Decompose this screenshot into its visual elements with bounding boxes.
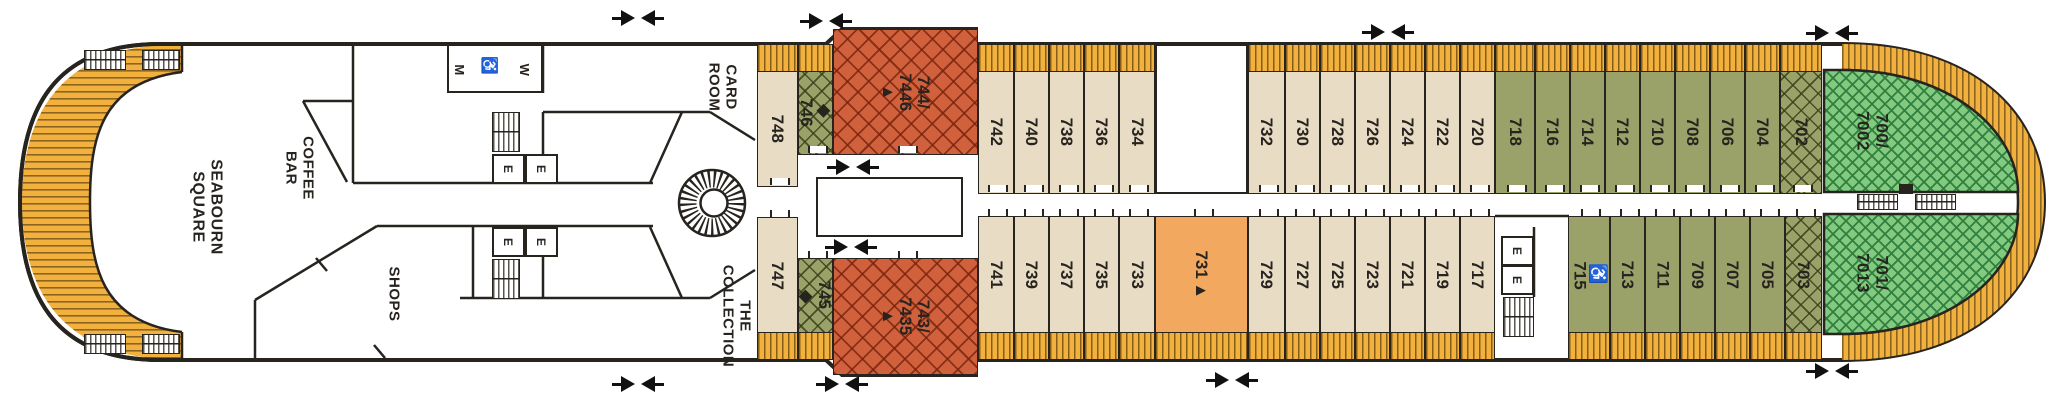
cabin-door [1615, 185, 1635, 192]
cabin-door [1435, 185, 1455, 192]
zone-arrows-layer [0, 0, 2060, 400]
arrow-tail [800, 20, 809, 23]
zone-arrow-icon [1835, 363, 1858, 379]
arrow-head [809, 13, 823, 29]
cabin-door [1059, 209, 1079, 216]
arrow-tail [1849, 370, 1858, 373]
cabin-door [1129, 185, 1149, 192]
zone-arrow-icon [612, 10, 635, 26]
cabin-door [808, 146, 828, 153]
cabin-door [808, 251, 828, 258]
arrow-head [829, 13, 843, 29]
arrow-head [1371, 24, 1385, 40]
arrow-tail [843, 20, 852, 23]
arrow-head [621, 10, 635, 26]
cabin-door [1507, 185, 1527, 192]
cabin-door [1094, 185, 1114, 192]
suite-label-701-7013: 701/ 7013 [1853, 253, 1890, 293]
cabin-door [1655, 209, 1675, 216]
cabin-door [1295, 209, 1315, 216]
arrow-tail [816, 383, 825, 386]
arrow-tail [655, 383, 664, 386]
arrow-tail [1362, 31, 1371, 34]
arrow-tail [1806, 32, 1815, 35]
arrow-head [1835, 363, 1849, 379]
zone-arrow-icon [856, 159, 879, 175]
arrow-head [621, 376, 635, 392]
arrow-tail [1249, 379, 1258, 382]
suite-label-700-7002: 700/ 7002 [1853, 111, 1890, 151]
arrow-tail [1806, 370, 1815, 373]
zone-arrow-icon [825, 239, 848, 255]
cabin-door [1024, 185, 1044, 192]
cabin-door [1580, 185, 1600, 192]
cabin-door [1259, 209, 1279, 216]
arrow-tail [825, 246, 834, 249]
cabin-door [1365, 209, 1385, 216]
zone-arrow-icon [641, 376, 664, 392]
arrow-head [1391, 24, 1405, 40]
arrow-head [834, 239, 848, 255]
cabin-door [1581, 209, 1601, 216]
cabin-door [1650, 185, 1670, 192]
arrow-tail [612, 17, 621, 20]
cabin-door [1194, 209, 1214, 216]
cabin-door [1024, 209, 1044, 216]
zone-arrow-icon [800, 13, 823, 29]
cabin-door [770, 210, 790, 217]
cabin-door [1685, 185, 1705, 192]
cabin-door [770, 178, 790, 185]
arrow-head [1815, 25, 1829, 41]
zone-arrow-icon [1391, 24, 1414, 40]
zone-arrow-icon [1806, 363, 1829, 379]
cabin-door [1796, 209, 1816, 216]
cabin-door [1620, 209, 1640, 216]
cabin-door [1400, 209, 1420, 216]
cabin-door [1400, 185, 1420, 192]
cabin-door [988, 209, 1008, 216]
cabin-door [1545, 185, 1565, 192]
cabin-door [1755, 185, 1775, 192]
cabin-door [1094, 209, 1114, 216]
zone-arrow-icon [1806, 25, 1829, 41]
arrow-head [641, 376, 655, 392]
cabin-door [1720, 185, 1740, 192]
cabin-door [1059, 185, 1079, 192]
zone-arrow-icon [1235, 372, 1258, 388]
cabin-door [1259, 185, 1279, 192]
arrow-tail [612, 383, 621, 386]
cabin-door [1690, 209, 1710, 216]
cabin-door [898, 146, 918, 153]
arrow-tail [859, 383, 868, 386]
arrow-head [1215, 372, 1229, 388]
arrow-tail [1405, 31, 1414, 34]
cabin-door [898, 251, 918, 258]
zone-arrow-icon [816, 376, 839, 392]
cabin-door [1470, 209, 1490, 216]
cabin-door [1470, 185, 1490, 192]
cabin-door [1129, 209, 1149, 216]
cabin-door [988, 185, 1008, 192]
arrow-tail [1849, 32, 1858, 35]
zone-arrow-icon [1362, 24, 1385, 40]
arrow-head [641, 10, 655, 26]
arrow-head [1835, 25, 1849, 41]
arrow-head [825, 376, 839, 392]
arrow-tail [868, 246, 877, 249]
cabin-door [1435, 209, 1455, 216]
zone-arrow-icon [854, 239, 877, 255]
arrow-tail [1206, 379, 1215, 382]
zone-arrow-icon [1206, 372, 1229, 388]
cabin-door [1760, 209, 1780, 216]
zone-arrow-icon [827, 159, 850, 175]
cabin-door [1725, 209, 1745, 216]
arrow-tail [655, 17, 664, 20]
zone-arrow-icon [612, 376, 635, 392]
arrow-head [1815, 363, 1829, 379]
arrow-head [1235, 372, 1249, 388]
arrow-tail [827, 166, 836, 169]
zone-arrow-icon [641, 10, 664, 26]
cabin-door [1330, 209, 1350, 216]
arrow-head [845, 376, 859, 392]
arrow-head [854, 239, 868, 255]
arrow-tail [870, 166, 879, 169]
cabin-door [1365, 185, 1385, 192]
zone-arrow-icon [829, 13, 852, 29]
zone-arrow-icon [1835, 25, 1858, 41]
cabin-door [1793, 185, 1813, 192]
cabin-door [1330, 185, 1350, 192]
zone-arrow-icon [845, 376, 868, 392]
cabin-door [1295, 185, 1315, 192]
arrow-head [836, 159, 850, 175]
arrow-head [856, 159, 870, 175]
deck-plan: SEABOURN SQUARE COFFEE BAR SHOPS CARD RO… [0, 0, 2060, 400]
